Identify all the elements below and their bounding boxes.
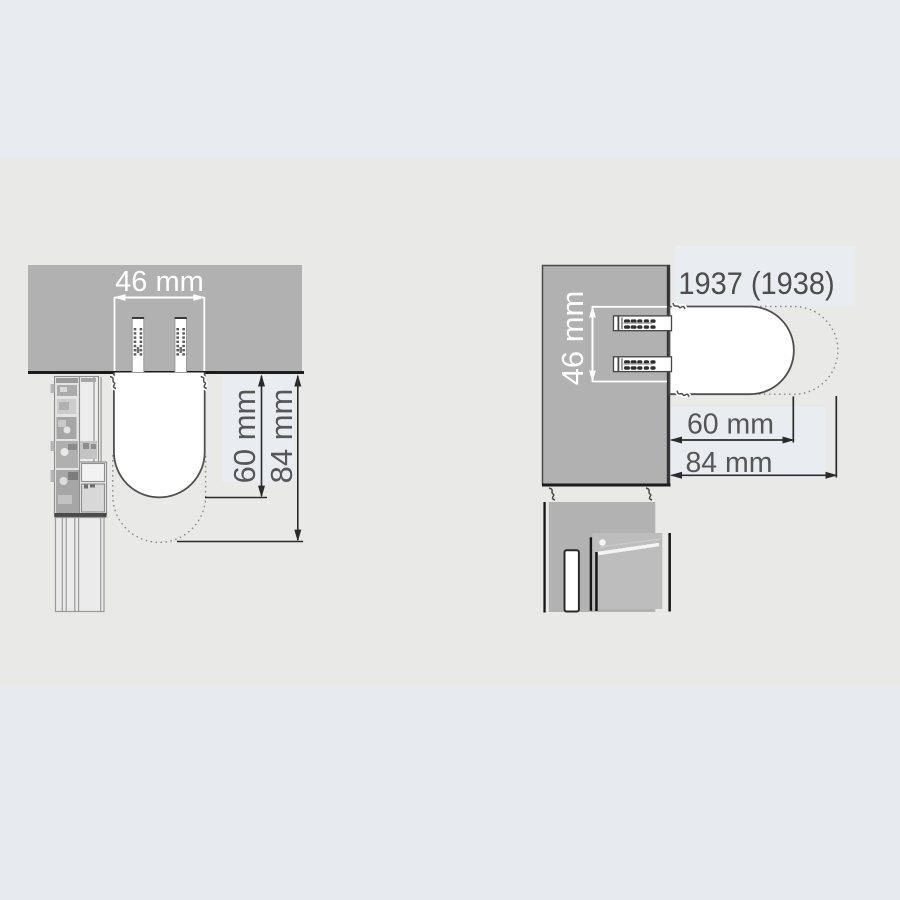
svg-text:1937 (1938): 1937 (1938) (678, 267, 834, 301)
svg-text:46 mm: 46 mm (555, 291, 590, 386)
svg-text:46 mm: 46 mm (115, 266, 204, 298)
svg-text:60 mm: 60 mm (227, 389, 262, 484)
svg-text:84 mm: 84 mm (685, 447, 772, 479)
svg-text:84 mm: 84 mm (264, 389, 299, 484)
svg-text:60 mm: 60 mm (687, 409, 774, 441)
